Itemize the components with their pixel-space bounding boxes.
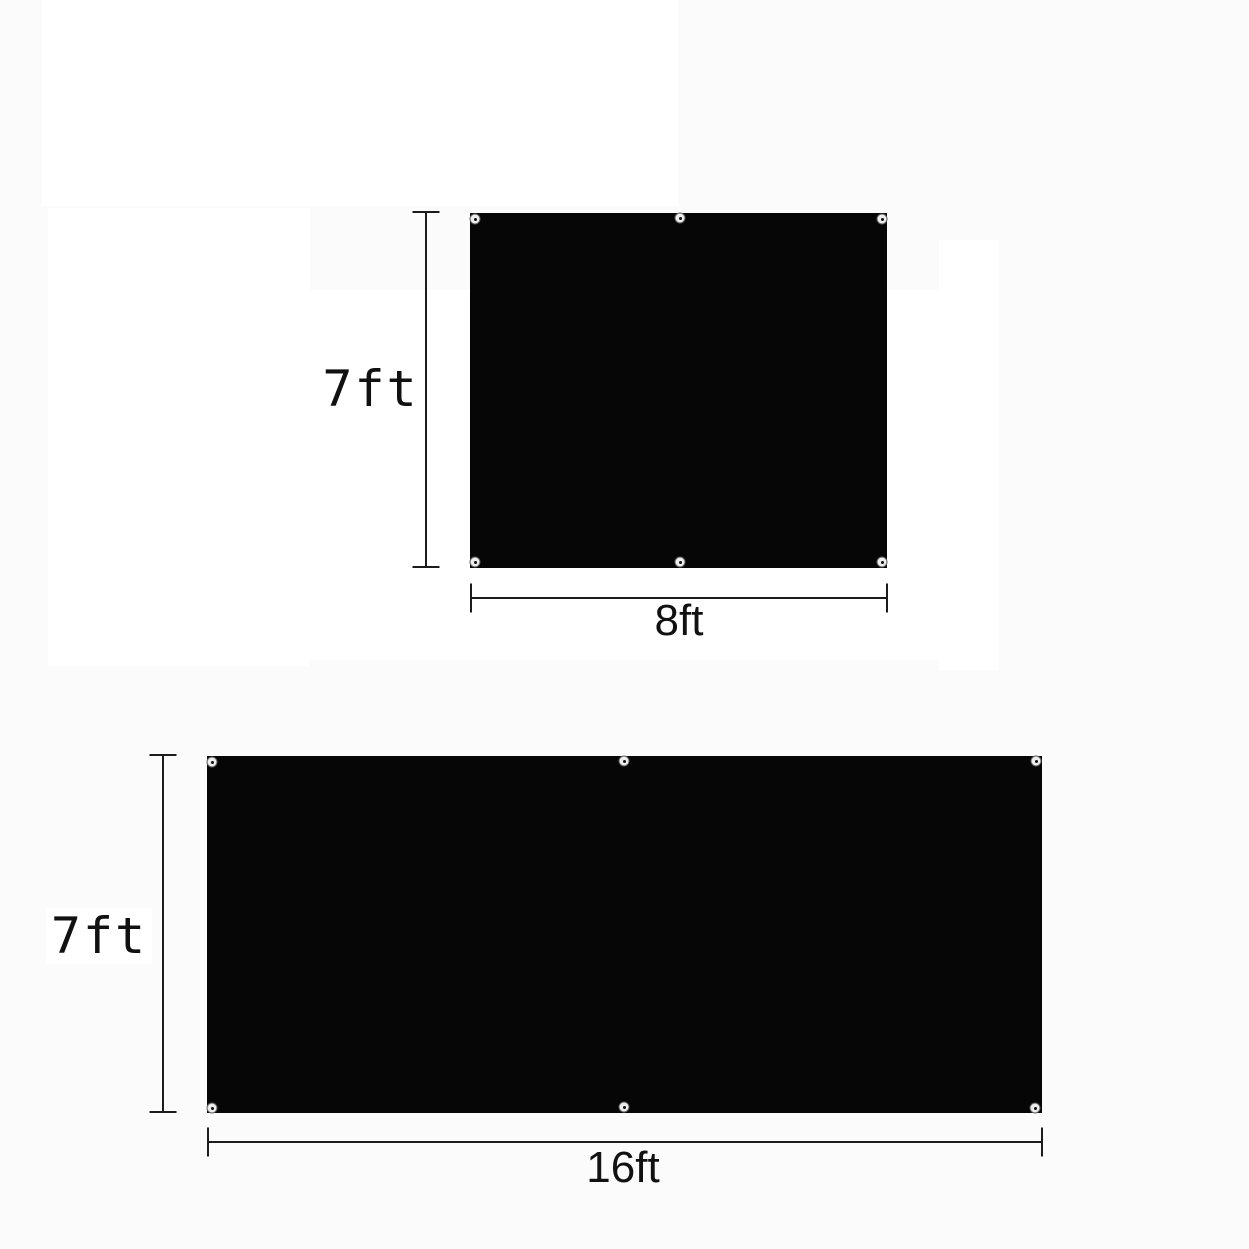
grommet-icon	[619, 756, 630, 767]
dimension-tick	[150, 1111, 177, 1113]
dimension-tick	[207, 1128, 209, 1157]
grommet-icon	[619, 1102, 630, 1113]
grommet-icon	[1030, 1103, 1041, 1114]
dimension-tick	[413, 566, 440, 568]
grommet-icon	[675, 213, 686, 224]
dimension-tick	[150, 754, 177, 756]
grommet-icon	[207, 1103, 218, 1114]
width-label: 16ft	[553, 1144, 693, 1192]
height-label: 7ft	[46, 908, 152, 964]
tarp-panel-8x7	[470, 213, 887, 568]
height-dimension-line	[425, 211, 427, 568]
height-dimension-line	[162, 754, 164, 1113]
background-patch	[939, 240, 999, 670]
tarp-panel-16x7	[207, 756, 1042, 1113]
grommet-icon	[470, 557, 481, 568]
dimension-tick	[470, 584, 472, 613]
product-dimension-diagram: 7ft 8ft 7ft 16ft	[0, 0, 1249, 1249]
dimension-tick	[413, 211, 440, 213]
grommet-icon	[877, 557, 888, 568]
background-patch	[42, 0, 678, 206]
dimension-tick	[1041, 1128, 1043, 1157]
grommet-icon	[1031, 756, 1042, 767]
width-label: 8ft	[619, 598, 739, 644]
grommet-icon	[470, 214, 481, 225]
grommet-icon	[207, 757, 218, 768]
grommet-icon	[877, 214, 888, 225]
height-label: 7ft	[322, 360, 419, 418]
dimension-tick	[886, 584, 888, 613]
grommet-icon	[675, 557, 686, 568]
